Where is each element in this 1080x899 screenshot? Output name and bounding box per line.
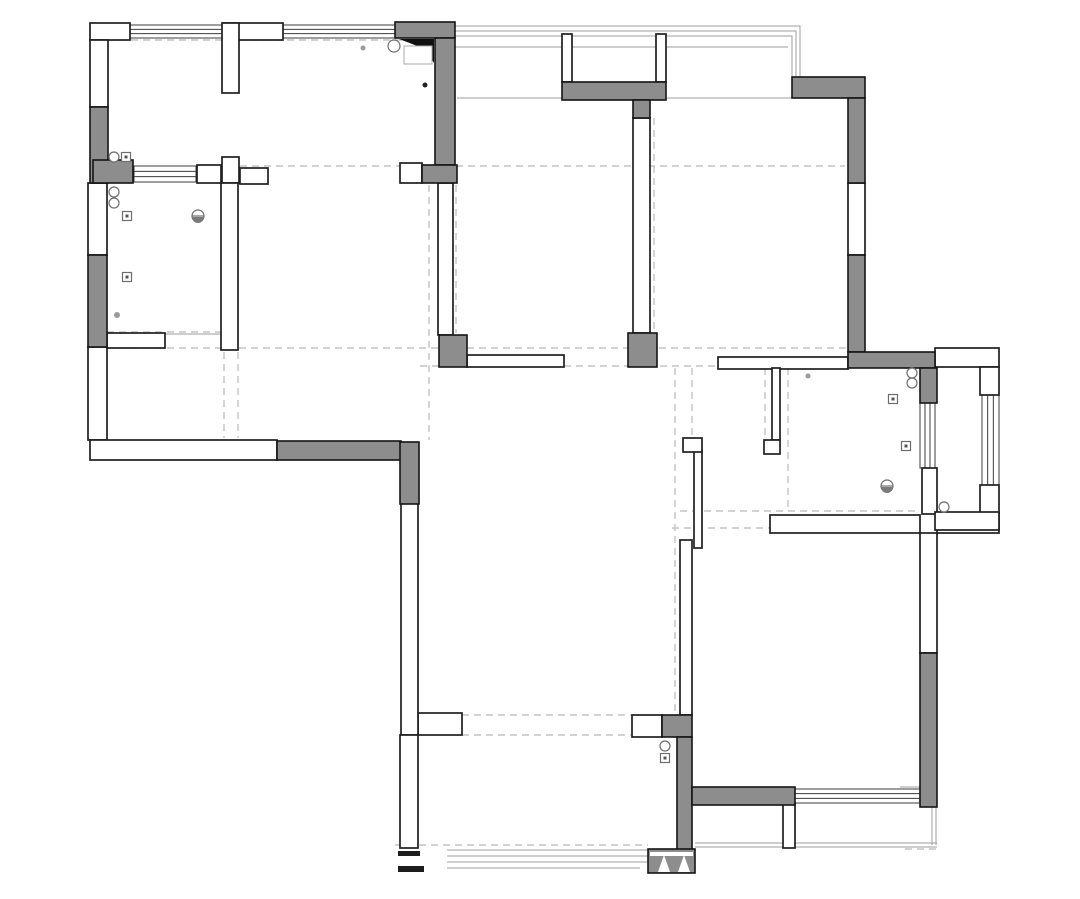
wall-retained-35 <box>400 735 418 848</box>
wall-retained-7 <box>222 157 239 183</box>
wall-retained-2 <box>90 40 108 107</box>
wall-masonry-6 <box>277 441 401 460</box>
wall-retained-30 <box>980 367 999 395</box>
wall-retained-19 <box>718 357 848 369</box>
marker-dot-icon-1 <box>423 83 428 88</box>
wall-retained-36 <box>632 715 662 737</box>
wall-retained-5 <box>90 440 277 460</box>
outlet-dot-icon-0 <box>125 156 128 159</box>
ceiling-lamp-half-icon-0 <box>192 217 204 223</box>
wall-masonry-1 <box>435 38 455 165</box>
wall-retained-18 <box>848 183 865 255</box>
wall-retained-37 <box>783 803 795 848</box>
wall-retained-32 <box>935 512 999 530</box>
outlet-dot-icon-4 <box>905 445 908 448</box>
detector-circle-icon-4 <box>907 368 917 378</box>
wall-retained-27 <box>922 468 937 514</box>
wall-retained-24 <box>680 540 692 715</box>
wall-retained-21 <box>764 440 780 454</box>
wall-masonry-5 <box>88 255 107 347</box>
wall-retained-16 <box>562 34 572 82</box>
window-frame-4 <box>982 395 999 485</box>
wall-retained-14 <box>633 118 650 333</box>
outlet-dot-icon-1 <box>126 215 129 218</box>
outlet-dot-icon-3 <box>892 398 895 401</box>
ceiling-lamp-half-icon-1 <box>881 487 893 493</box>
wall-stub-1 <box>398 866 424 872</box>
detector-circle-icon-2 <box>109 198 119 208</box>
wall-retained-28 <box>920 533 937 653</box>
window-frame-2 <box>134 166 196 182</box>
wall-retained-29 <box>935 348 999 367</box>
window-frame-0 <box>129 25 223 38</box>
window-frame-5 <box>795 789 920 803</box>
wall-masonry-11 <box>439 335 467 367</box>
wall-masonry-0 <box>395 22 455 38</box>
wall-masonry-9 <box>633 100 650 118</box>
wall-retained-22 <box>694 450 702 548</box>
wall-masonry-13 <box>848 98 865 183</box>
wall-retained-10 <box>107 333 165 348</box>
wall-masonry-14 <box>848 255 865 352</box>
window-frame-3 <box>920 403 935 468</box>
marker-dot-icon-0 <box>361 46 366 51</box>
wall-masonry-12 <box>792 77 865 98</box>
wall-retained-12 <box>400 163 422 183</box>
wall-masonry-7 <box>400 442 419 504</box>
wall-retained-15 <box>467 355 564 367</box>
wall-retained-34 <box>401 503 418 735</box>
wall-masonry-2 <box>422 165 457 183</box>
wall-retained-33 <box>418 713 462 735</box>
wall-masonry-16 <box>920 368 937 403</box>
detector-circle-icon-7 <box>660 741 670 751</box>
wall-retained-23 <box>683 438 702 452</box>
window-frame-1 <box>283 25 395 38</box>
wall-masonry-15 <box>848 352 935 368</box>
detector-circle-icon-1 <box>109 187 119 197</box>
outlet-dot-icon-5 <box>664 757 667 760</box>
marker-dot-icon-2 <box>806 374 811 379</box>
wall-retained-13 <box>438 183 453 335</box>
wall-masonry-8 <box>562 82 666 100</box>
duct-box <box>404 46 432 64</box>
wall-masonry-10 <box>628 333 657 367</box>
outlet-dot-icon-2 <box>126 276 129 279</box>
floor-plan-canvas <box>0 0 1080 899</box>
detector-circle-icon-3 <box>388 40 400 52</box>
detector-circle-icon-5 <box>907 378 917 388</box>
wall-retained-4 <box>88 347 107 440</box>
wall-retained-17 <box>656 34 666 82</box>
wall-masonry-17 <box>662 715 692 737</box>
wall-retained-11 <box>240 168 268 184</box>
wall-retained-3 <box>88 183 107 255</box>
wall-retained-31 <box>980 485 999 513</box>
wall-retained-0 <box>90 23 130 40</box>
floor-plan-page <box>0 0 1080 899</box>
wall-masonry-20 <box>920 653 937 807</box>
entry-door-slot <box>650 852 693 856</box>
detector-circle-icon-6 <box>939 502 949 512</box>
wall-retained-20 <box>772 368 780 440</box>
wall-retained-6 <box>222 23 239 93</box>
wall-retained-8 <box>221 183 238 350</box>
wall-masonry-18 <box>677 737 692 850</box>
wall-masonry-19 <box>692 787 795 805</box>
marker-dot-icon-3 <box>114 312 120 318</box>
detector-circle-icon-0 <box>109 152 119 162</box>
wall-stub-0 <box>398 851 420 856</box>
wall-retained-25 <box>770 515 920 533</box>
wall-retained-9 <box>197 165 221 183</box>
wall-masonry-4 <box>93 160 133 183</box>
